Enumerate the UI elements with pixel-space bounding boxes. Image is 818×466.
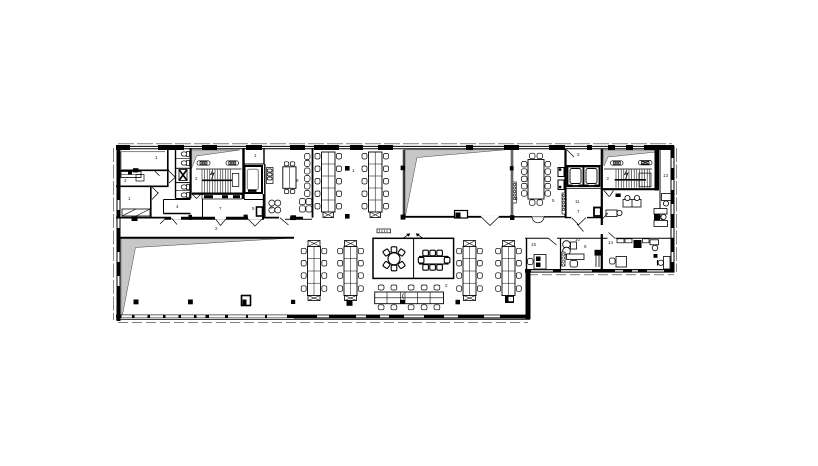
- svg-text:15: 15: [531, 242, 537, 247]
- svg-text:11: 11: [575, 199, 580, 204]
- svg-text:14: 14: [608, 240, 614, 245]
- svg-text:13: 13: [663, 173, 669, 178]
- svg-text:10: 10: [575, 237, 581, 242]
